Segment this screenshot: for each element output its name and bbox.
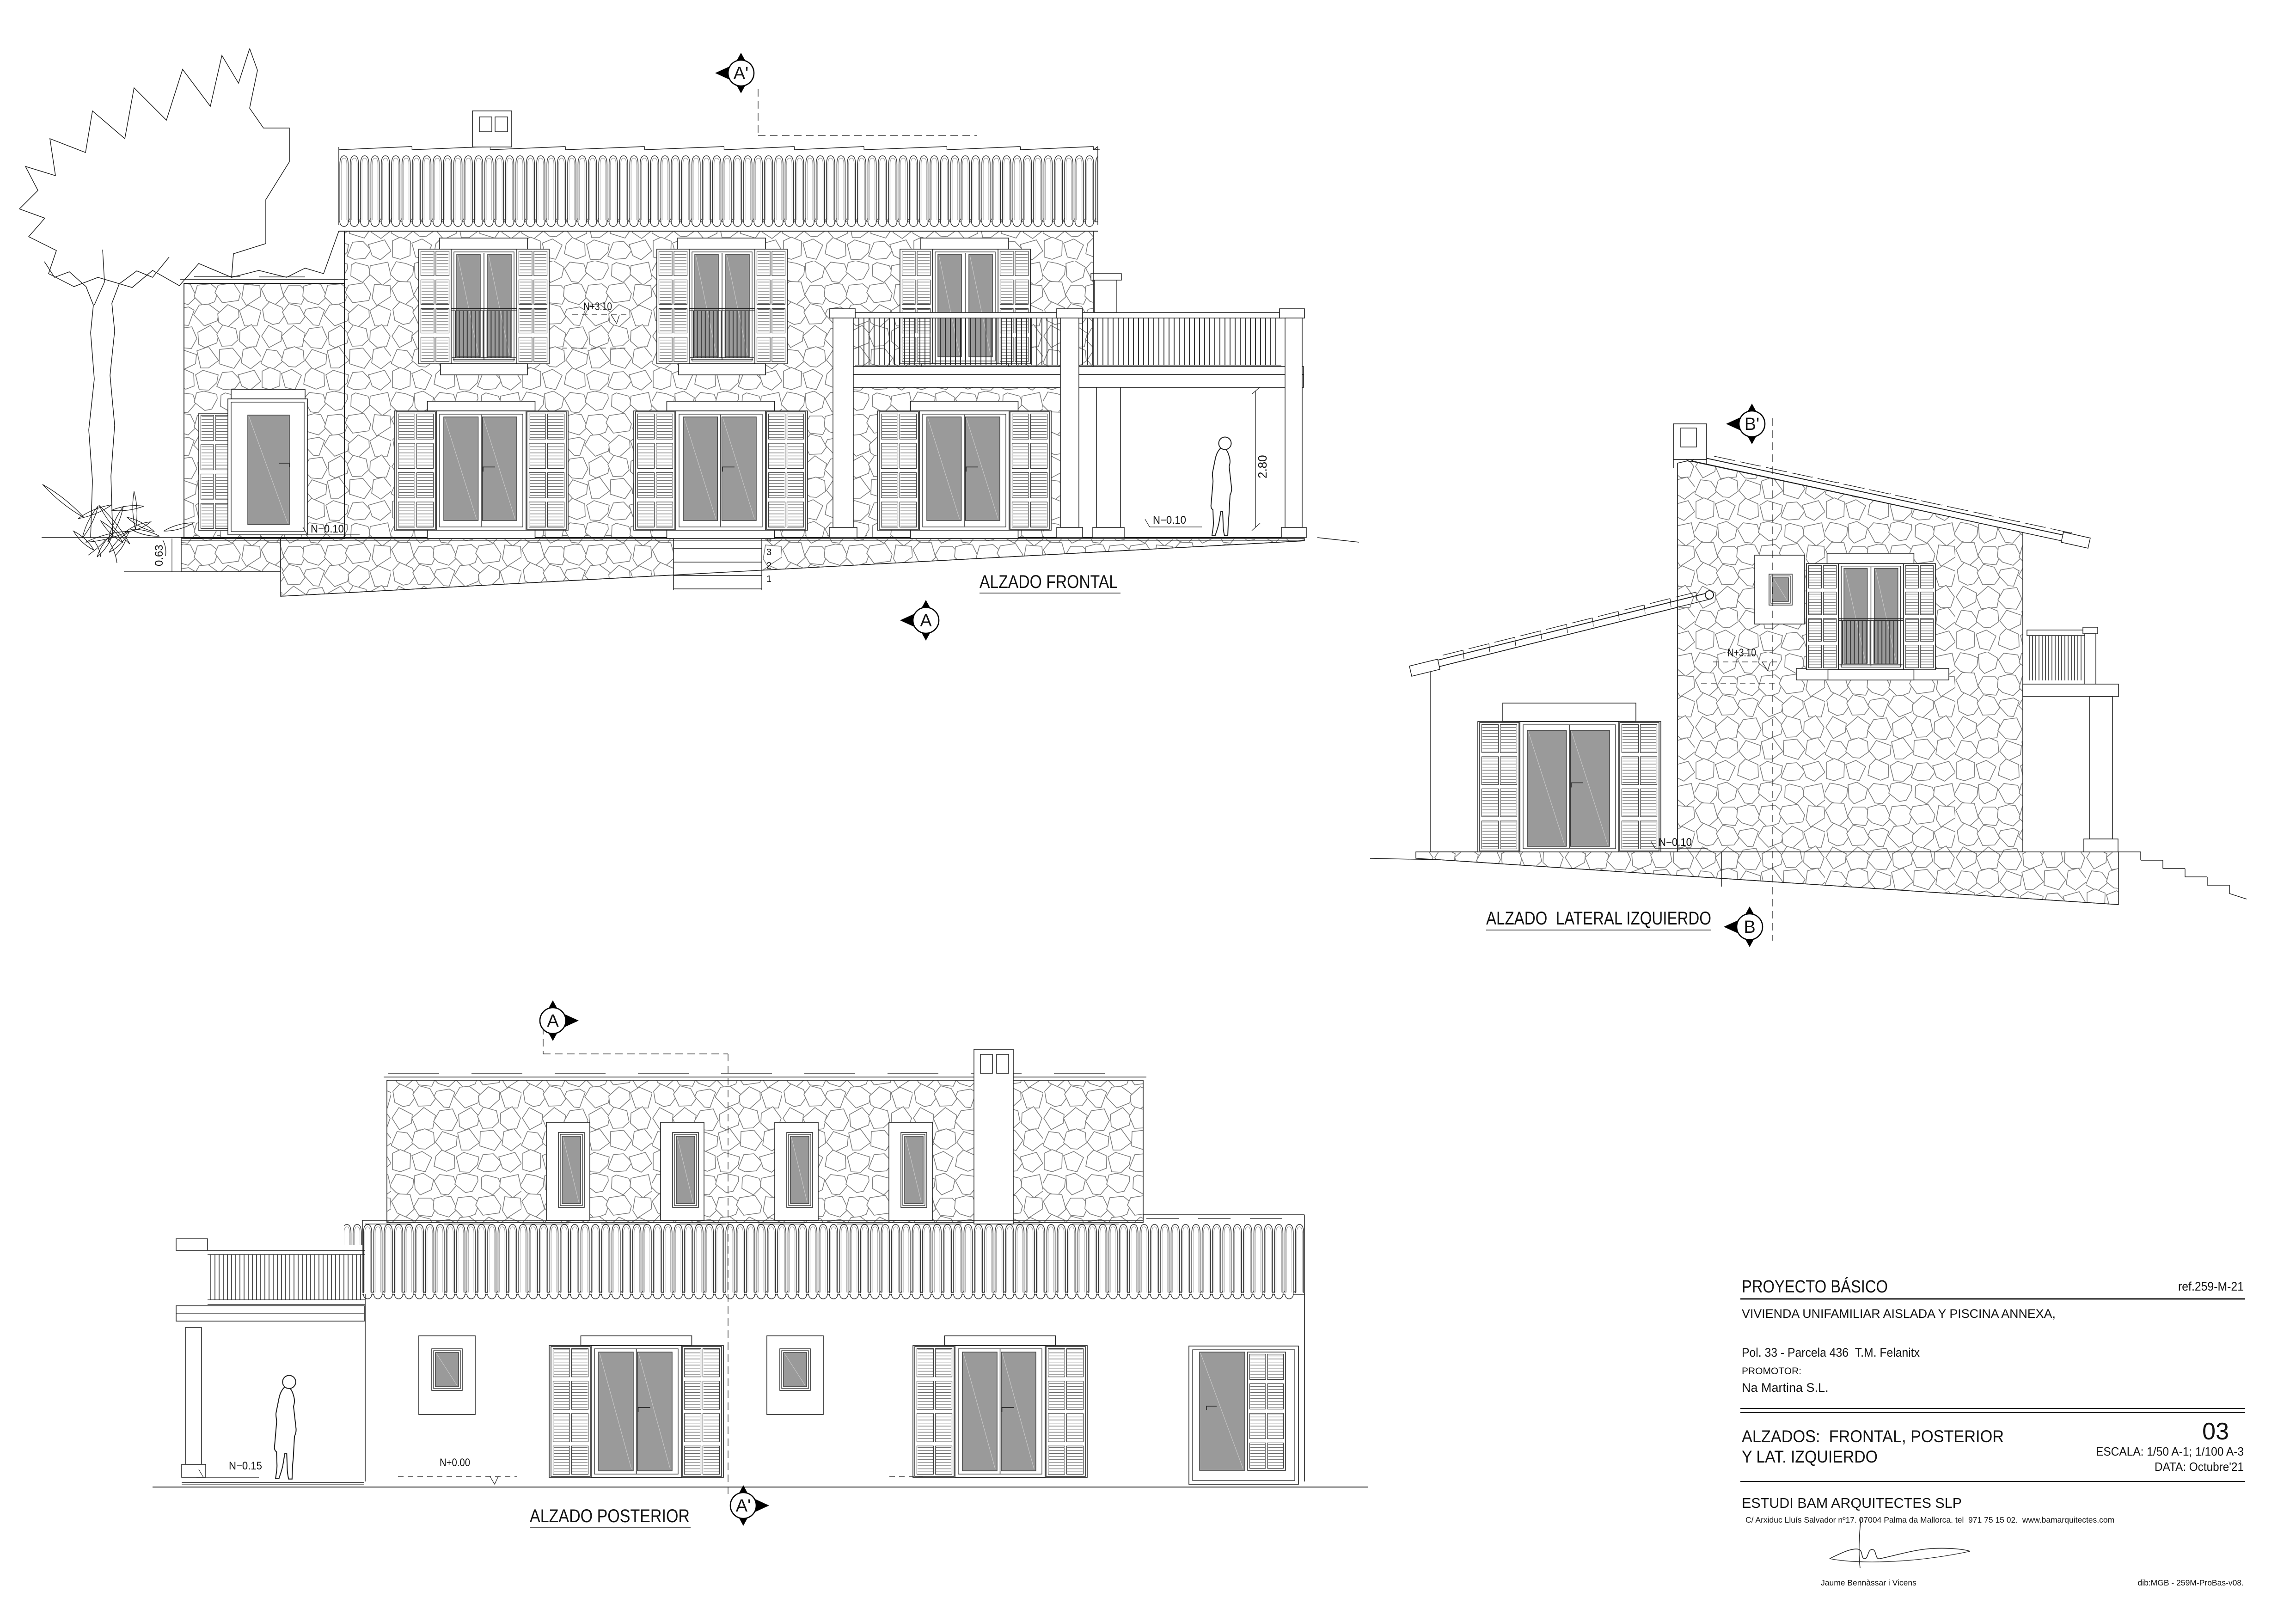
svg-text:ESTUDI BAM ARQUITECTES SLP: ESTUDI BAM ARQUITECTES SLP	[1742, 1495, 1962, 1511]
svg-text:2: 2	[766, 561, 771, 571]
svg-text:A': A'	[734, 64, 749, 83]
svg-text:VIVIENDA UNIFAMILIAR AISLADA Y: VIVIENDA UNIFAMILIAR AISLADA Y PISCINA A…	[1742, 1307, 2056, 1321]
svg-text:Pol. 33 - Parcela 436 T.M. Fe: Pol. 33 - Parcela 436 T.M. Felanitx	[1742, 1346, 1920, 1359]
svg-text:B: B	[1744, 918, 1755, 937]
svg-text:A: A	[547, 1011, 559, 1031]
svg-text:Y LAT. IZQUIERDO: Y LAT. IZQUIERDO	[1742, 1447, 1878, 1466]
svg-text:ALZADO POSTERIOR: ALZADO POSTERIOR	[530, 1506, 690, 1526]
svg-text:3: 3	[766, 547, 771, 557]
svg-text:B': B'	[1745, 415, 1760, 434]
svg-text:ALZADOS: FRONTAL, POSTERIOR: ALZADOS: FRONTAL, POSTERIOR	[1742, 1427, 2004, 1446]
svg-text:DATA: Octubre'21: DATA: Octubre'21	[2155, 1460, 2244, 1474]
svg-text:1: 1	[766, 574, 771, 584]
svg-text:N+3.10: N+3.10	[1727, 647, 1756, 659]
svg-text:Jaume Bennàssar i Vicens: Jaume Bennàssar i Vicens	[1821, 1578, 1916, 1587]
svg-text:PROMOTOR:: PROMOTOR:	[1742, 1366, 1801, 1377]
svg-text:N−0.10: N−0.10	[1659, 836, 1692, 849]
svg-text:ESCALA: 1/50 A-1; 1/100 A-3: ESCALA: 1/50 A-1; 1/100 A-3	[2096, 1444, 2244, 1458]
svg-text:ALZADO LATERAL IZQUIERDO: ALZADO LATERAL IZQUIERDO	[1486, 908, 1711, 929]
svg-text:PROYECTO BÁSICO: PROYECTO BÁSICO	[1742, 1277, 1888, 1297]
svg-text:2.80: 2.80	[1255, 455, 1269, 478]
svg-text:ALZADO FRONTAL: ALZADO FRONTAL	[980, 572, 1118, 592]
svg-text:A': A'	[736, 1496, 751, 1516]
svg-text:N+0.00: N+0.00	[440, 1457, 470, 1469]
svg-text:N−0.10: N−0.10	[1153, 514, 1186, 526]
svg-text:03: 03	[2202, 1418, 2229, 1445]
svg-text:A: A	[920, 611, 932, 630]
svg-text:ref.259-M-21: ref.259-M-21	[2178, 1279, 2244, 1293]
svg-text:N−0.15: N−0.15	[229, 1460, 262, 1472]
svg-text:N−0.10: N−0.10	[311, 523, 344, 535]
svg-text:0.63: 0.63	[153, 545, 165, 566]
svg-text:C/ Arxiduc Lluís Salvador nº17: C/ Arxiduc Lluís Salvador nº17. 07004 Pa…	[1745, 1515, 2114, 1524]
svg-text:dib:MGB - 259M-ProBas-v08.: dib:MGB - 259M-ProBas-v08.	[2137, 1578, 2244, 1587]
svg-text:N+3.10: N+3.10	[583, 300, 612, 313]
svg-text:Na Martina S.L.: Na Martina S.L.	[1742, 1381, 1829, 1395]
